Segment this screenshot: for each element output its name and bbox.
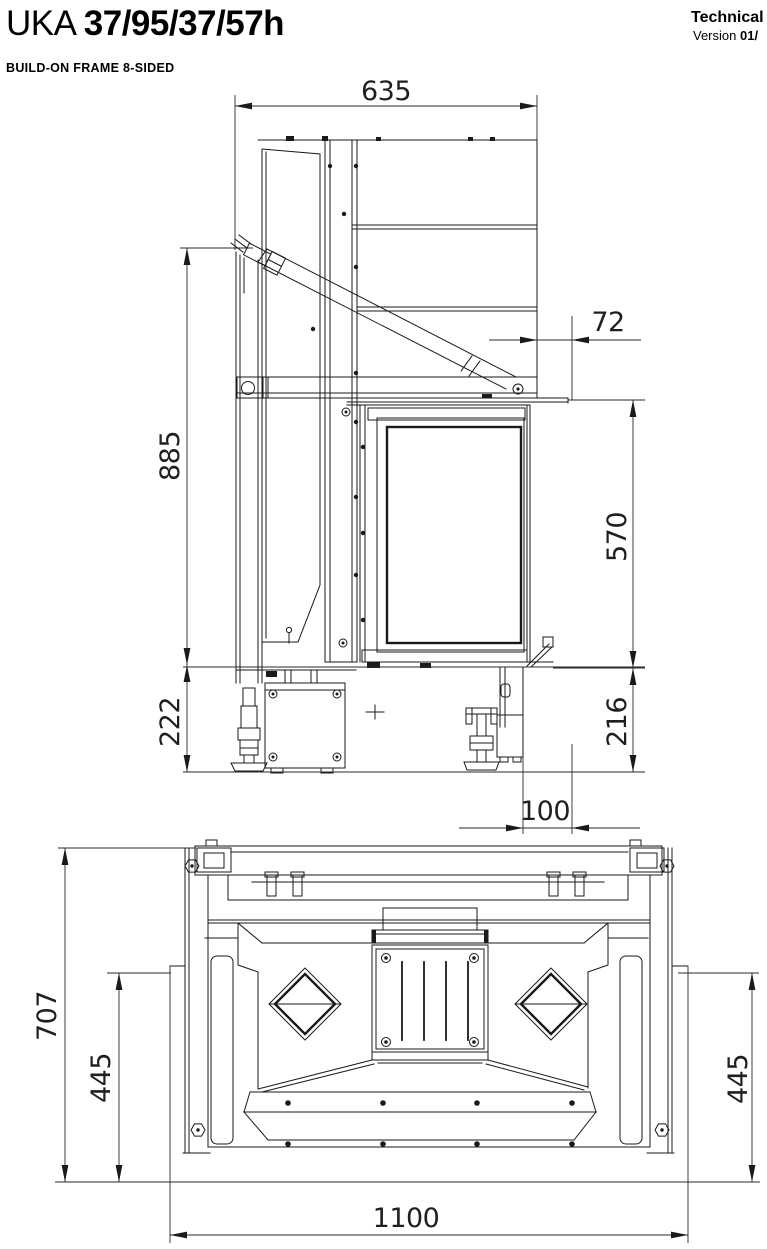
dim-label-depth: 707 <box>32 991 63 1041</box>
glass-pane <box>387 427 521 643</box>
glass-frame <box>377 418 524 652</box>
inner-rail <box>228 872 628 900</box>
side-view-dimensions: 635 885 222 72 570 <box>155 76 645 834</box>
vent-diamond-right <box>515 968 587 1040</box>
center-grille-plate <box>372 945 488 1063</box>
dim-label-top-width: 635 <box>361 76 411 107</box>
vent-diamond-left <box>269 968 341 1040</box>
junction-box <box>265 683 345 773</box>
top-view-dimensions: 707 445 445 1100 <box>32 848 760 1243</box>
connection-duct <box>497 668 523 762</box>
dim-label-base-height-left: 222 <box>155 697 186 747</box>
dim-label-base-height-right: 216 <box>602 697 633 747</box>
dim-label-overall-width: 1100 <box>373 1203 440 1234</box>
right-leveling-foot <box>464 708 499 770</box>
dim-label-inner-depth-right: 445 <box>723 1054 754 1104</box>
flue-back-panel <box>262 149 320 643</box>
lintel-plate <box>347 394 568 405</box>
diagonal-brace <box>231 235 516 389</box>
technical-drawing: 635 885 222 72 570 <box>0 0 767 1249</box>
fire-door <box>360 405 553 668</box>
left-column-edges <box>236 252 262 683</box>
top-rail <box>185 840 674 875</box>
top-view-structure <box>170 840 688 1153</box>
left-frame-wing <box>183 848 233 1153</box>
side-view-structure <box>226 136 568 773</box>
support-column <box>325 140 357 662</box>
dim-label-base-offset: 100 <box>520 796 570 827</box>
side-view: 635 885 222 72 570 <box>155 76 645 834</box>
top-view: 707 445 445 1100 <box>32 840 760 1243</box>
dim-label-body-height: 885 <box>155 431 186 481</box>
dim-label-inner-depth-left: 445 <box>86 1053 117 1103</box>
dim-label-flue-offset: 72 <box>591 307 624 338</box>
convection-box <box>353 140 537 398</box>
flue-collar <box>372 908 488 943</box>
brace-fitting <box>242 241 285 276</box>
hood-bands <box>208 1060 650 1147</box>
dim-label-door-height: 570 <box>602 512 633 562</box>
